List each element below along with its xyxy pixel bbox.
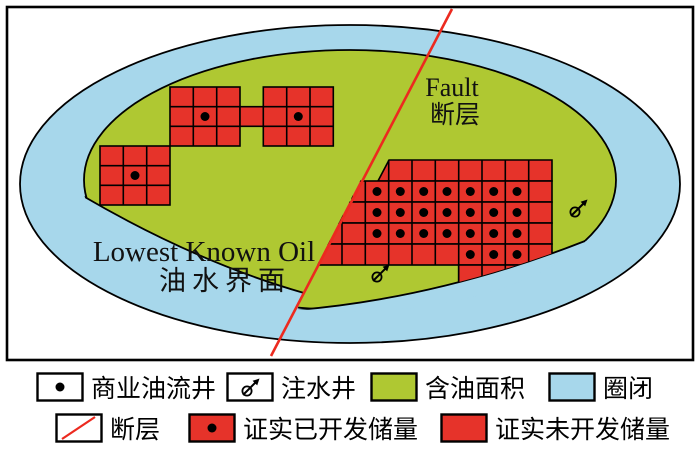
legend-label: 商业油流井 [91,369,216,405]
trap-swatch [548,372,596,402]
fault-label-zh: 断层 [430,101,480,129]
legend-label: 圈闭 [603,369,653,405]
lko-label-en: Lowest Known Oil [93,236,315,268]
diagram-canvas: Fault 断层 Lowest Known Oil 油水界面 [0,0,700,362]
legend-item-fault: 断层 [55,413,160,443]
oil-area-swatch [370,372,418,402]
developed-reserves-swatch [188,413,236,443]
oil-well-dot-icon [208,424,217,433]
oil-well-swatch [36,372,84,402]
fault-label-en: Fault [425,73,479,102]
lko-label-zh: 油水界面 [159,266,291,296]
legend-item-trap: 圈闭 [548,372,653,402]
legend-label: 证实已开发储量 [243,410,418,446]
undeveloped-reserves-swatch [440,413,488,443]
legend-item-developed-reserves: 证实已开发储量 [188,413,418,443]
reserves-diagram: Fault 断层 Lowest Known Oil 油水界面 商业油流井 注水井… [0,0,700,449]
legend-item-injection-well: 注水井 [226,372,356,402]
legend-label: 含油面积 [425,369,525,405]
oil-well-dot-icon [56,383,65,392]
legend-item-oil-area: 含油面积 [370,372,525,402]
legend-label: 断层 [110,410,160,446]
legend-item-commercial-oil-well: 商业油流井 [36,372,216,402]
legend-label: 注水井 [281,369,356,405]
fault-swatch [55,413,103,443]
legend-item-undeveloped-reserves: 证实未开发储量 [440,413,670,443]
legend-label: 证实未开发储量 [495,410,670,446]
injection-well-swatch [226,372,274,402]
